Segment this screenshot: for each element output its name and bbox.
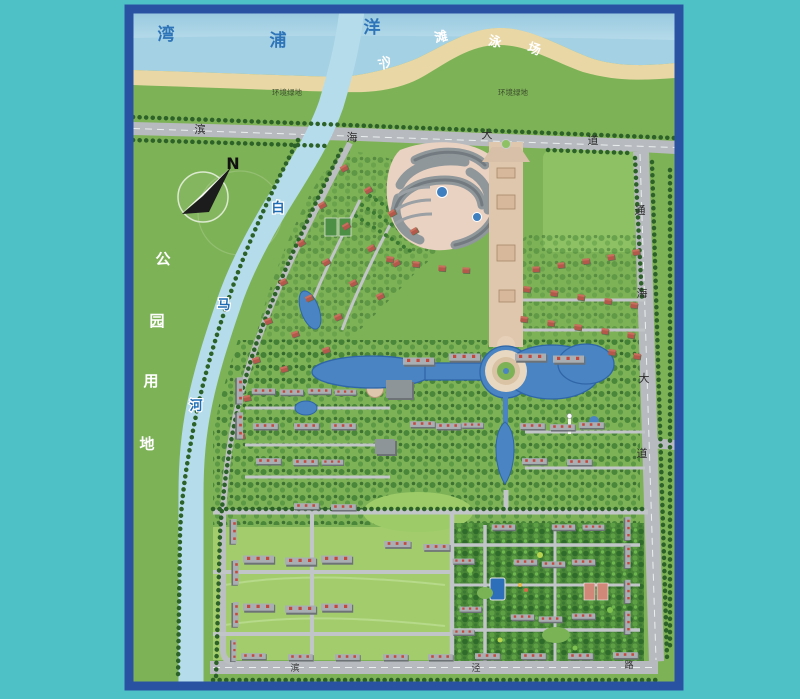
slab-building — [403, 358, 435, 367]
slab-building — [331, 504, 357, 511]
slab-building — [453, 630, 476, 636]
slab-building — [243, 556, 275, 565]
west-pond — [295, 401, 317, 415]
slab-building — [552, 524, 576, 531]
villa-building — [550, 290, 559, 297]
map-content — [133, 10, 675, 682]
master-plan-map: N 湾 浦 洋 沙 滩 泳 场 环境绿地 环境绿地 滨 海 大 道 通 海 大 … — [0, 0, 800, 699]
slab-building — [294, 423, 320, 430]
community-lawn — [477, 587, 493, 599]
slab-building — [230, 640, 236, 663]
slab-building — [383, 654, 409, 661]
slab-building — [475, 653, 501, 660]
binjing-road-char: 泾 — [471, 662, 480, 674]
park-label-char: 用 — [143, 372, 158, 390]
slab-building — [231, 560, 238, 586]
slab-building — [567, 459, 593, 466]
slab-building — [321, 604, 353, 613]
villa-building — [547, 320, 556, 327]
tennis-court — [597, 583, 608, 600]
clubhouse-pool — [437, 187, 448, 198]
clubhouse-pool — [473, 213, 482, 222]
slab-building — [453, 559, 476, 565]
slab-building — [253, 423, 279, 430]
slab-building — [624, 611, 631, 635]
park-label-char: 公 — [155, 250, 170, 268]
slab-building — [568, 653, 594, 660]
slab-building — [235, 412, 243, 439]
binjing-road-char: 滨 — [290, 662, 299, 674]
swimming-pool — [490, 578, 505, 600]
villa-building — [607, 254, 616, 261]
roundabout — [502, 140, 511, 149]
tonghai-avenue-char: 大 — [639, 371, 650, 385]
buffer-green-label-left: 环境绿地 — [272, 87, 302, 97]
villa-building — [532, 266, 540, 273]
park-label-char: 园 — [149, 312, 164, 330]
villa-building — [632, 249, 641, 256]
slab-building — [520, 423, 546, 430]
villa-building — [604, 298, 613, 305]
slab-building — [428, 654, 454, 661]
community-lawn — [542, 627, 570, 643]
villa-building — [386, 256, 395, 263]
villa-building — [582, 258, 591, 265]
slab-building — [229, 519, 236, 545]
slab-building — [288, 654, 314, 661]
slab-building — [522, 458, 548, 465]
slab-building — [308, 388, 332, 395]
slab-building — [294, 503, 320, 510]
slab-building — [613, 652, 639, 659]
villa-building — [627, 332, 636, 339]
sea-label-char: 湾 — [158, 24, 175, 45]
sea-label-char: 浦 — [270, 30, 287, 51]
slab-building — [235, 377, 243, 404]
villa-building — [633, 353, 642, 360]
slab-building — [572, 613, 596, 620]
tonghai-avenue-char: 海 — [637, 286, 648, 300]
slab-building — [280, 389, 304, 396]
sea-label-char: 洋 — [364, 17, 381, 38]
slab-building — [256, 458, 282, 465]
slab-building — [331, 423, 357, 430]
slab-building — [542, 561, 566, 568]
villa-building — [462, 267, 470, 274]
binhai-avenue-char: 道 — [588, 133, 599, 147]
slab-building — [572, 559, 596, 566]
slab-building — [550, 424, 576, 431]
slab-building — [539, 616, 563, 623]
slab-building — [624, 580, 631, 604]
slab-building — [449, 354, 481, 363]
binhai-avenue-char: 海 — [347, 130, 358, 144]
villa-building — [630, 302, 639, 309]
buffer-green-label-right: 环境绿地 — [498, 87, 528, 97]
slab-building — [492, 524, 516, 531]
villa-building — [520, 316, 529, 323]
slab-building — [624, 517, 631, 541]
compass-north-label: N — [226, 154, 239, 173]
slab-building — [293, 459, 319, 466]
slab-building — [285, 606, 317, 615]
slab-building — [321, 556, 353, 565]
site-plan-poster: N 湾 浦 洋 沙 滩 泳 场 环境绿地 环境绿地 滨 海 大 道 通 海 大 … — [0, 0, 800, 699]
river-label-char: 河 — [189, 398, 202, 414]
villa-building — [557, 262, 565, 269]
open-fields — [213, 527, 452, 660]
villa-building — [438, 265, 446, 272]
slab-building — [410, 421, 436, 428]
slab-building — [252, 388, 276, 395]
slab-building — [436, 423, 462, 430]
slab-building — [521, 653, 547, 660]
slab-building — [462, 423, 485, 429]
slab-building — [553, 356, 585, 365]
slab-building — [285, 558, 317, 567]
villa-building — [523, 286, 532, 293]
binhai-avenue-char: 滨 — [195, 122, 206, 136]
slab-building — [335, 654, 361, 661]
slab-building — [460, 607, 483, 613]
slab-building — [583, 525, 606, 531]
river-label-char: 马 — [217, 298, 230, 313]
villa-building — [608, 349, 617, 356]
tonghai-avenue-char: 道 — [637, 446, 648, 460]
slab-building — [322, 460, 345, 466]
slab-building — [243, 604, 275, 613]
slab-building — [335, 390, 358, 396]
sea-gradient — [133, 13, 675, 40]
slab-building — [624, 545, 631, 569]
villa-building — [577, 294, 586, 301]
tennis-court — [584, 583, 595, 600]
river-label-char: 白 — [271, 200, 284, 216]
slab-building — [231, 602, 238, 628]
slab-building — [384, 541, 411, 549]
villa-building — [574, 324, 583, 331]
villa-building — [601, 328, 610, 335]
slab-building — [514, 559, 538, 566]
binjing-road-char: 路 — [624, 659, 633, 671]
slab-building — [241, 653, 267, 660]
slab-building — [579, 422, 605, 429]
slab-building — [515, 354, 547, 363]
binhai-avenue-char: 大 — [482, 127, 493, 141]
villa-building — [412, 261, 420, 268]
tonghai-avenue-char: 通 — [635, 204, 646, 217]
slab-building — [511, 614, 535, 621]
park-label-char: 地 — [139, 435, 154, 453]
slab-building — [423, 544, 450, 552]
